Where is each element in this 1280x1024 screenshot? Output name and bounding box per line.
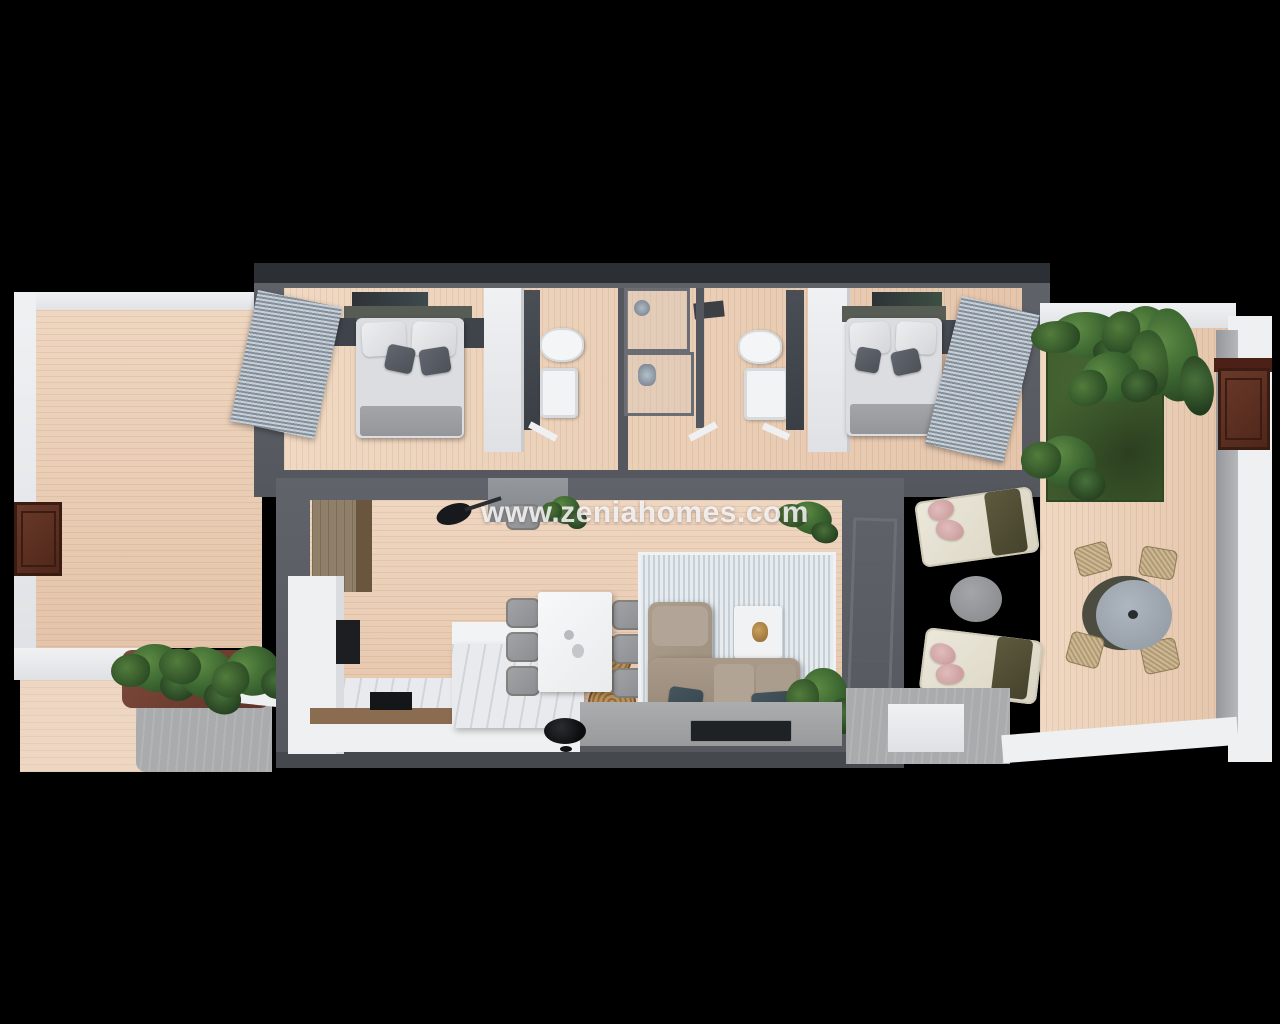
bathroom2-glass-wall (786, 290, 804, 430)
dining-chair-l2 (506, 632, 540, 662)
bedroom2-foot-blanket (850, 404, 940, 434)
kitchen-cabinet-side (356, 500, 372, 592)
sofa-chaise-cushion (652, 606, 708, 646)
right-terrace-door (1218, 368, 1270, 450)
upper-block-wall-top-face (254, 263, 1050, 283)
dining-chair-l1 (506, 598, 540, 628)
bedroom1-cushion-left (384, 343, 417, 374)
coffee-table-decor (752, 622, 768, 642)
bathroom2-sink (744, 368, 788, 420)
stone-path (136, 704, 272, 772)
shower-head-2 (638, 364, 656, 386)
terrace-white-block (888, 704, 964, 752)
bedroom1-wardrobe (484, 288, 524, 452)
floor-plan-render: www.zeniahomes.com (0, 0, 1280, 1024)
left-terrace-door (14, 502, 62, 576)
bathroom2-partition-wall (696, 288, 704, 428)
left-terrace-wall-left (14, 292, 36, 668)
bedroom1-tv (352, 292, 428, 306)
robot-vacuum-dock (560, 746, 572, 752)
kitchen-oven (336, 620, 360, 664)
outdoor-chair-2 (1138, 545, 1179, 581)
living-block-wall-bottom-face (276, 752, 904, 768)
tv-flatscreen (690, 720, 792, 742)
terrace-pouf (950, 576, 1002, 622)
terrace-glass-door (847, 517, 898, 710)
left-terrace-deck (36, 310, 262, 648)
bathroom1-glass-wall (524, 290, 540, 430)
dining-table (538, 592, 612, 692)
dining-chair-l3 (506, 666, 540, 696)
bathroom2-toilet (738, 330, 782, 364)
bedroom1-foot-blanket (360, 406, 462, 436)
dining-table-decor-2 (572, 644, 584, 658)
bathroom1-toilet (540, 328, 584, 362)
shower-head-1 (634, 300, 650, 316)
watermark-text: www.zeniahomes.com (480, 496, 810, 530)
dining-table-decor-1 (564, 630, 574, 640)
bedroom2-cushion-left (854, 346, 882, 374)
robot-vacuum (544, 718, 586, 744)
kitchen-cooktop (370, 692, 412, 710)
bathroom1-sink (540, 368, 578, 418)
kitchen-counter-plinth (288, 724, 580, 752)
outdoor-table-umbrella-hole (1128, 610, 1138, 619)
shower-stall-1 (624, 288, 690, 352)
bedroom1-cushion-right (418, 346, 452, 376)
shower-stall-2 (624, 352, 694, 416)
left-terrace-wall-top (14, 292, 262, 312)
